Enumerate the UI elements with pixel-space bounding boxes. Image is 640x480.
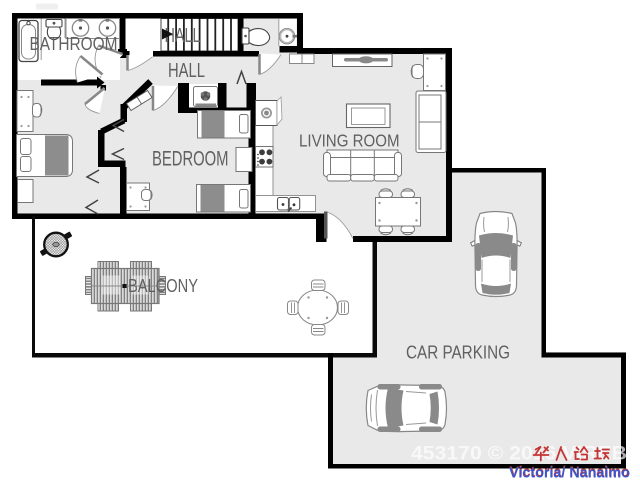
svg-text:453170 © 2016 VIREB: 453170 © 2016 VIREB bbox=[411, 443, 627, 465]
svg-text:CAR PARKING: CAR PARKING bbox=[406, 342, 510, 363]
svg-text:BATHROOM: BATHROOM bbox=[30, 33, 118, 54]
svg-text:BEDROOM: BEDROOM bbox=[152, 147, 229, 170]
svg-text:HALL: HALL bbox=[168, 59, 205, 82]
svg-text:Victoria/ Nanaimo: Victoria/ Nanaimo bbox=[509, 466, 630, 480]
svg-text:LIVING ROOM: LIVING ROOM bbox=[299, 131, 400, 151]
svg-text:BALCONY: BALCONY bbox=[128, 276, 198, 296]
svg-text:HALL: HALL bbox=[165, 25, 201, 47]
